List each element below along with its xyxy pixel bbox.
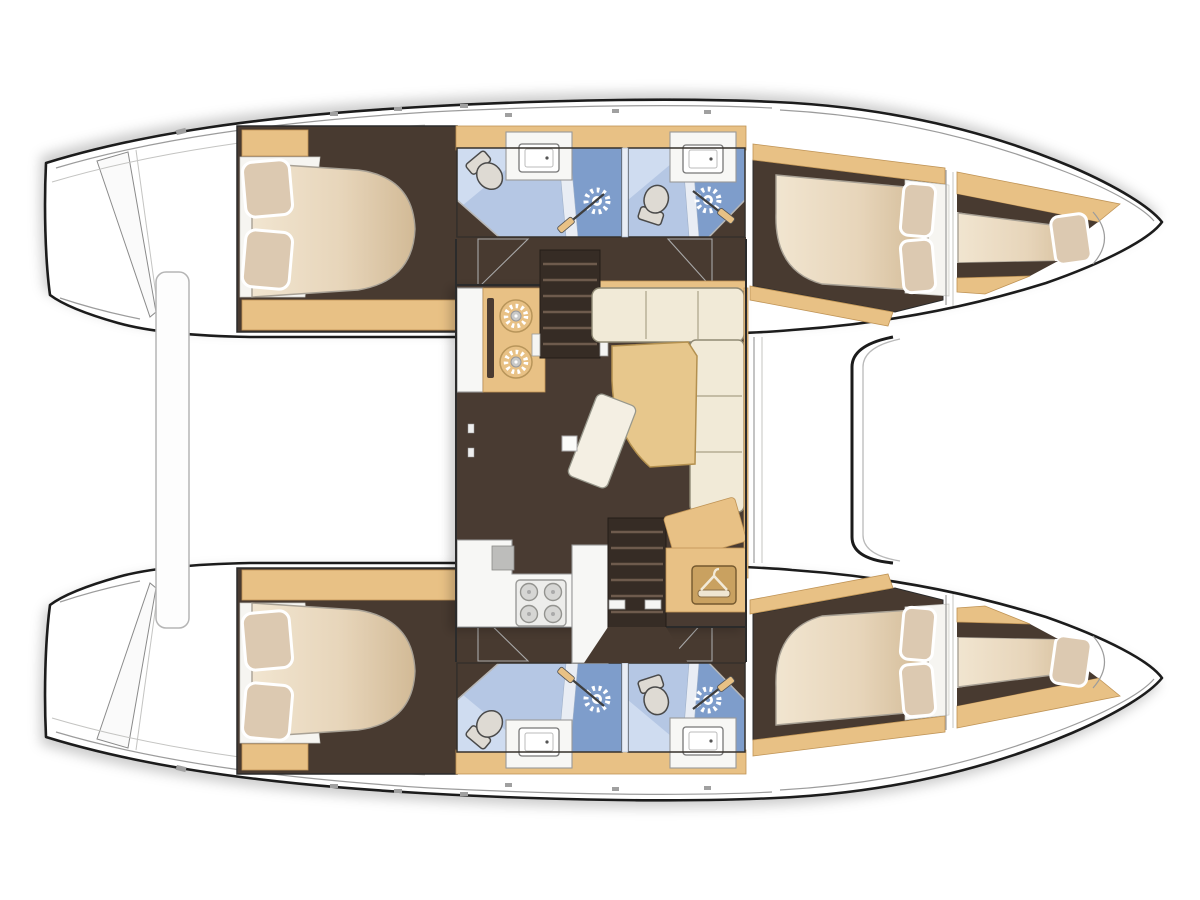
aft-cockpit-bench (156, 272, 189, 628)
hinge-mark (468, 448, 474, 457)
hob-4-burner (516, 580, 566, 626)
wardrobe (663, 497, 747, 612)
hinge-mark (468, 424, 474, 433)
sink-block (492, 546, 514, 570)
salon-front-track-lines (754, 337, 762, 563)
forward-crossbeam (852, 337, 900, 563)
floorplan-page (0, 0, 1200, 900)
floorplan-canvas (0, 0, 1200, 900)
table-leg (562, 436, 577, 451)
hanger-icon (692, 566, 736, 604)
salon (456, 239, 748, 663)
